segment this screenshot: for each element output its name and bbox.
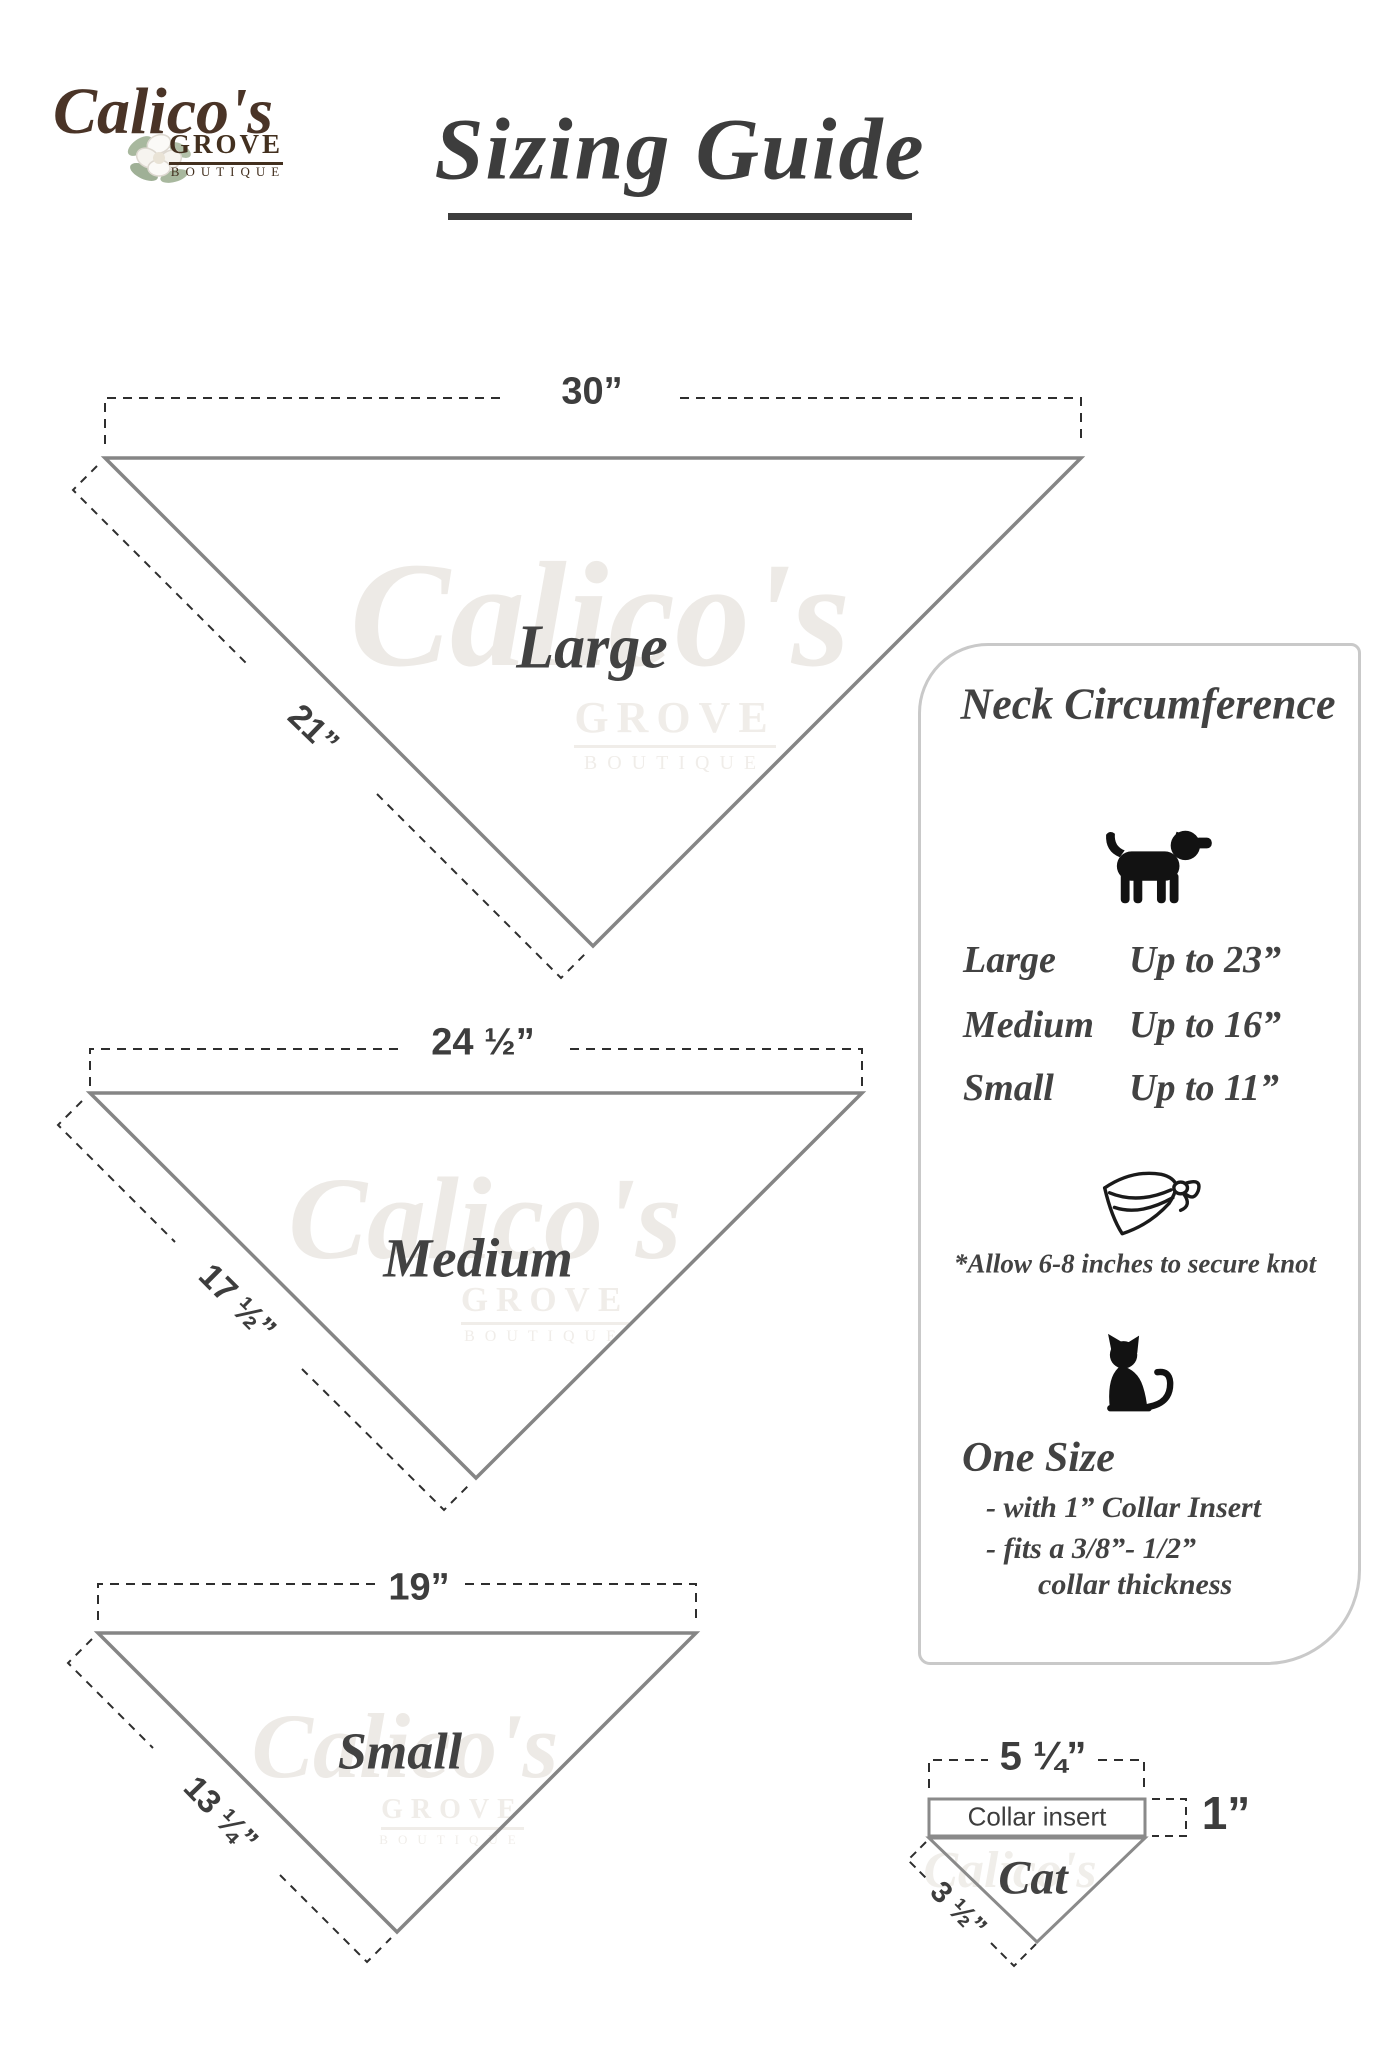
cat-width-label: 5 ¼” [1000,1735,1087,1780]
neck-row-small: Small Up to 11” [963,1066,1279,1110]
sizing-guide-page: Calico's GROVE BOUTIQUE Calico's GROVE B… [0,0,1376,2060]
small-width-label: 19” [388,1567,449,1610]
bandana-knot-icon [1093,1162,1205,1251]
panel-heading: Neck Circumference [960,679,1335,730]
one-size-heading: One Size [962,1434,1115,1482]
neck-row-size: Large [963,938,1125,982]
cat-icon [1098,1332,1182,1421]
neck-row-limit: Up to 16” [1129,1003,1281,1047]
cat-insert-height-bracket [1152,1799,1186,1836]
neck-row-limit: Up to 11” [1129,1066,1279,1110]
medium-width-label: 24 ½” [431,1022,535,1065]
neck-row-large: Large Up to 23” [963,938,1281,982]
cat-size-label: Cat [998,1851,1067,1906]
dog-icon [1097,822,1215,919]
small-size-label: Small [338,1723,462,1782]
cat-insert-height-label: 1” [1202,1786,1251,1840]
one-size-line1: - with 1” Collar Insert [986,1491,1261,1525]
neck-row-size: Medium [963,1003,1125,1047]
large-size-label: Large [516,613,668,684]
neck-row-size: Small [963,1066,1125,1110]
title-underline [448,213,912,220]
medium-size-label: Medium [383,1227,572,1290]
neck-row-medium: Medium Up to 16” [963,1003,1281,1047]
page-title: Sizing Guide [434,100,925,201]
logo-boutique: BOUTIQUE [171,164,285,180]
one-size-line2: - fits a 3/8”- 1/2” [986,1532,1196,1566]
collar-insert-label: Collar insert [968,1802,1107,1833]
neck-row-limit: Up to 23” [1129,938,1281,982]
logo-grove: GROVE [169,129,283,165]
one-size-line3: collar thickness [1038,1568,1232,1602]
large-width-label: 30” [561,371,622,414]
knot-note: *Allow 6-8 inches to secure knot [954,1249,1316,1280]
